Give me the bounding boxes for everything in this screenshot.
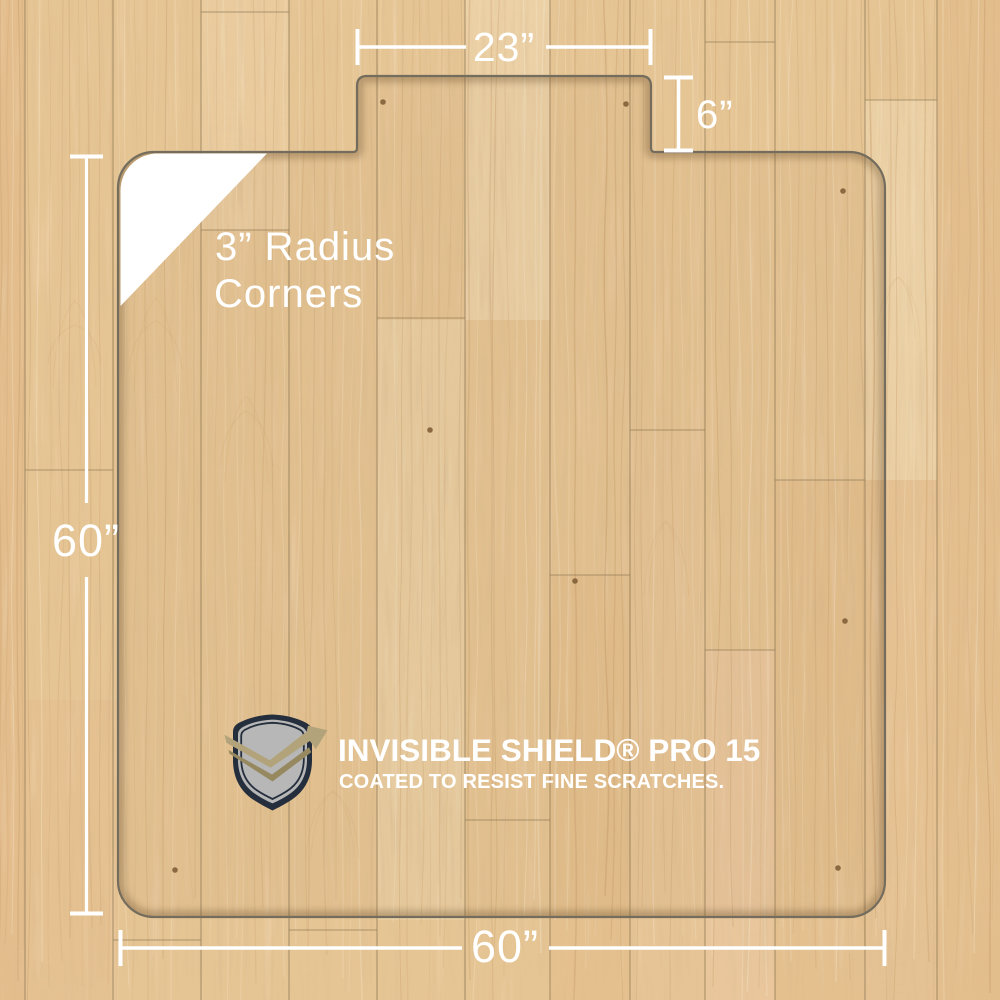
svg-text:3” Radius: 3” Radius [215,225,395,269]
svg-text:60”: 60” [52,515,120,566]
svg-text:Corners: Corners [214,272,363,316]
svg-text:COATED TO RESIST FINE SCRATCHE: COATED TO RESIST FINE SCRATCHES. [339,771,724,793]
svg-text:60”: 60” [471,921,539,972]
svg-text:6”: 6” [696,93,734,137]
svg-text:INVISIBLE SHIELD® PRO 15: INVISIBLE SHIELD® PRO 15 [338,732,760,768]
svg-text:23”: 23” [473,24,535,70]
